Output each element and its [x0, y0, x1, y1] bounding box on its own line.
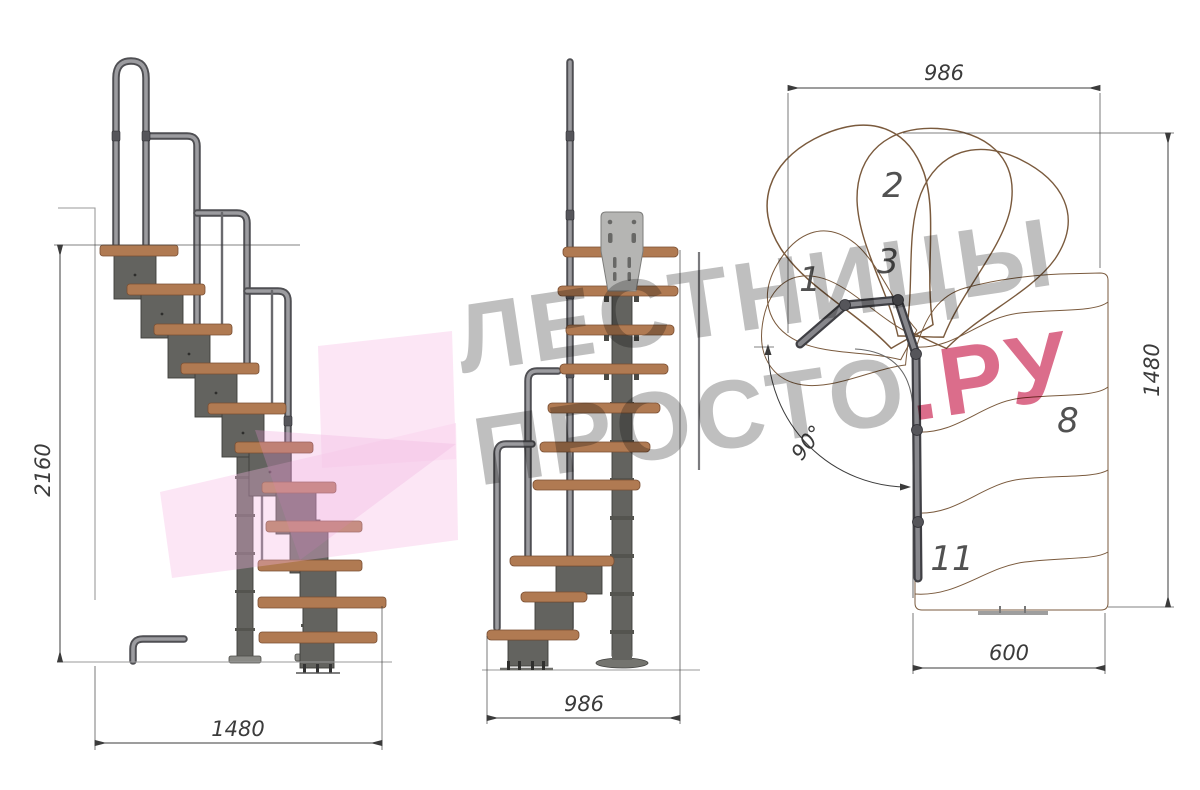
tread-label-8: 8 [1057, 401, 1079, 441]
inner-edge-line [855, 349, 913, 598]
front-mounting-plate [601, 212, 643, 291]
upper-floor-edge [58, 208, 95, 600]
plan-tread-numbers: 1 2 3 8 11 [799, 166, 1079, 579]
tread-label-2: 2 [882, 166, 904, 206]
tread-label-3: 3 [877, 242, 899, 282]
plan-dimensions: 986 1480 600 90° [754, 61, 1174, 674]
plan-bottom-dim: 600 [989, 641, 1029, 665]
front-column [610, 290, 634, 656]
front-treads [487, 247, 678, 666]
plan-top-dim: 986 [924, 61, 964, 85]
drawing-canvas: 2160 1480 [0, 0, 1200, 790]
front-handrail [497, 62, 699, 628]
side-floor [57, 662, 392, 673]
plan-view: 1 2 3 8 11 986 1480 600 90° [743, 61, 1174, 674]
plan-right-dim: 1480 [1140, 343, 1164, 396]
front-width-dim: 986 [564, 692, 604, 716]
staircase-drawing: 2160 1480 [0, 0, 1200, 790]
tread-label-1: 1 [799, 260, 821, 300]
tread-label-11: 11 [930, 539, 973, 579]
side-width-dim: 1480 [211, 717, 264, 741]
front-view: 986 [482, 62, 700, 724]
angle-arc [768, 347, 908, 487]
side-height-dim: 2160 [31, 443, 55, 496]
